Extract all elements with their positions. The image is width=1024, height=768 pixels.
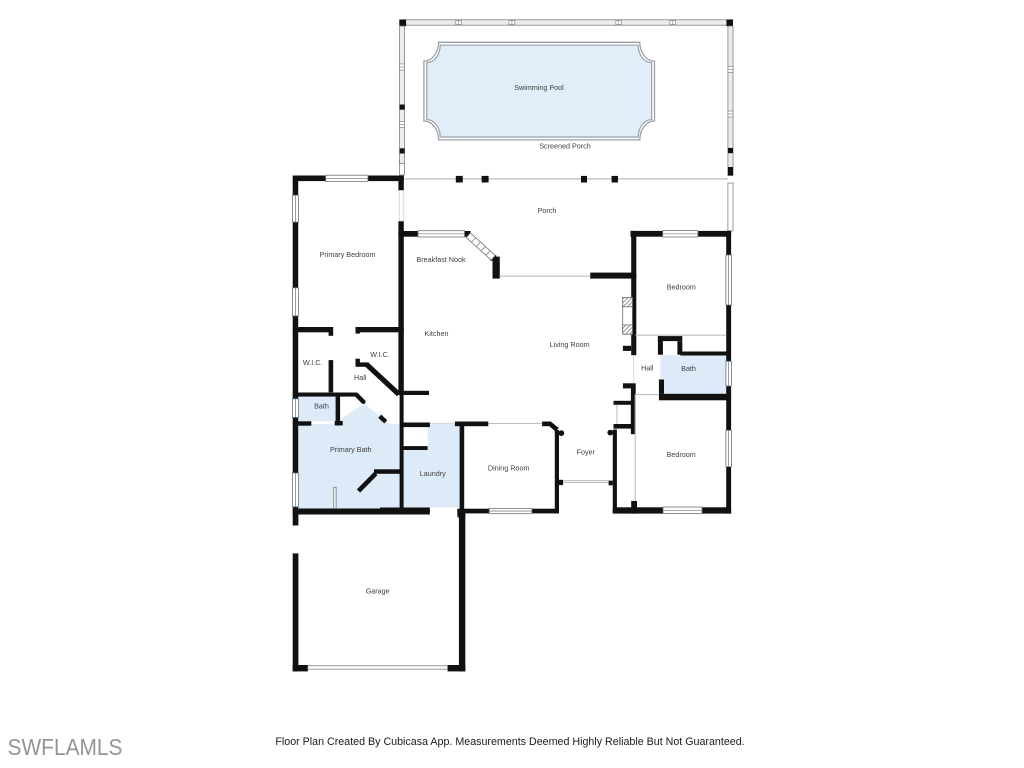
svg-text:Dining Room: Dining Room (488, 464, 530, 473)
svg-text:Floor Plan Created By Cubicasa: Floor Plan Created By Cubicasa App. Meas… (275, 736, 744, 748)
svg-text:Hall: Hall (641, 364, 654, 373)
svg-text:Primary Bath: Primary Bath (330, 445, 372, 454)
svg-text:Porch: Porch (538, 206, 557, 215)
svg-text:Breakfast Nook: Breakfast Nook (416, 255, 466, 264)
svg-text:Garage: Garage (366, 587, 390, 596)
svg-text:W.I.C.: W.I.C. (370, 350, 390, 359)
svg-text:W.I.C.: W.I.C. (303, 358, 323, 367)
svg-text:Primary Bedroom: Primary Bedroom (320, 250, 376, 259)
svg-text:Bath: Bath (681, 364, 696, 373)
svg-text:Laundry: Laundry (420, 469, 446, 478)
svg-text:Screened Porch: Screened Porch (539, 142, 591, 151)
svg-text:Foyer: Foyer (577, 448, 596, 457)
svg-text:SWFLAMLS: SWFLAMLS (8, 734, 123, 760)
svg-text:Kitchen: Kitchen (425, 329, 449, 338)
svg-text:Swimming Pool: Swimming Pool (514, 83, 564, 92)
svg-text:Living Room: Living Room (550, 340, 590, 349)
svg-text:Bedroom: Bedroom (667, 450, 696, 459)
svg-text:Hall: Hall (354, 373, 367, 382)
svg-text:Bedroom: Bedroom (667, 283, 696, 292)
svg-text:Bath: Bath (314, 402, 329, 411)
